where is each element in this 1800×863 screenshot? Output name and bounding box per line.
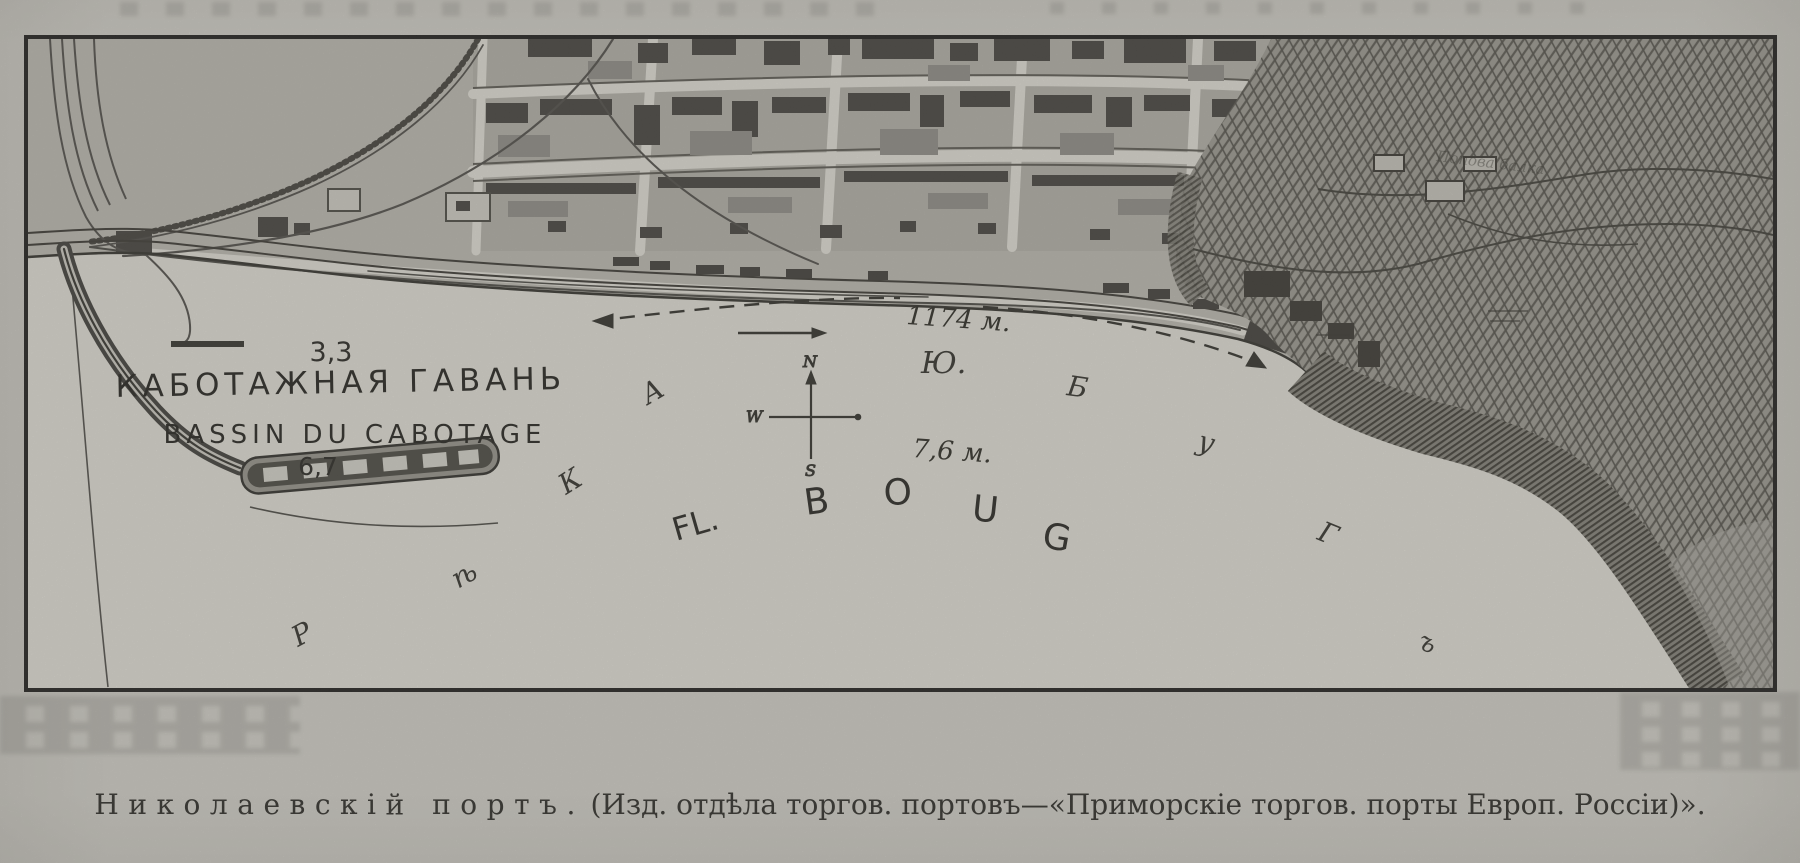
harbor-name-fr: BASSIN DU CABOTAGE bbox=[164, 420, 547, 450]
depth-label-33: 3,3 bbox=[310, 337, 353, 368]
figure-caption: Николаевскій портъ.(Изд. отдѣла торгов. … bbox=[0, 788, 1800, 821]
depth-label-67: 6,7 bbox=[298, 452, 338, 481]
depth-label-76: 7,6 м. bbox=[912, 434, 993, 469]
river-name-u: U bbox=[970, 488, 1001, 532]
shed-detail bbox=[456, 201, 470, 211]
page-bleed-text-top-left bbox=[120, 2, 880, 16]
port-map: N W S 3,3 КАБОТАЖНАЯ ГАВАНЬ BASSIN DU CA… bbox=[28, 39, 1773, 688]
page-bleed-text-top-right bbox=[1050, 2, 1610, 14]
river-name-o: O bbox=[883, 472, 913, 514]
compass-west-label: W bbox=[746, 407, 764, 426]
compass-south-label: S bbox=[805, 461, 816, 480]
caption-port-name: Николаевскій портъ. bbox=[94, 788, 584, 821]
bug-letter-yu: Ю. bbox=[920, 346, 966, 381]
bug-letter-b: Б bbox=[1064, 369, 1090, 405]
compass-north-label: N bbox=[802, 352, 818, 371]
page-bleed-text-bottom-right bbox=[1620, 692, 1800, 770]
page-bleed-text-bottom-left bbox=[0, 696, 300, 754]
map-frame: N W S 3,3 КАБОТАЖНАЯ ГАВАНЬ BASSIN DU CA… bbox=[24, 35, 1777, 692]
caption-source: (Изд. отдѣла торгов. портовъ—«Приморскіе… bbox=[590, 788, 1705, 821]
